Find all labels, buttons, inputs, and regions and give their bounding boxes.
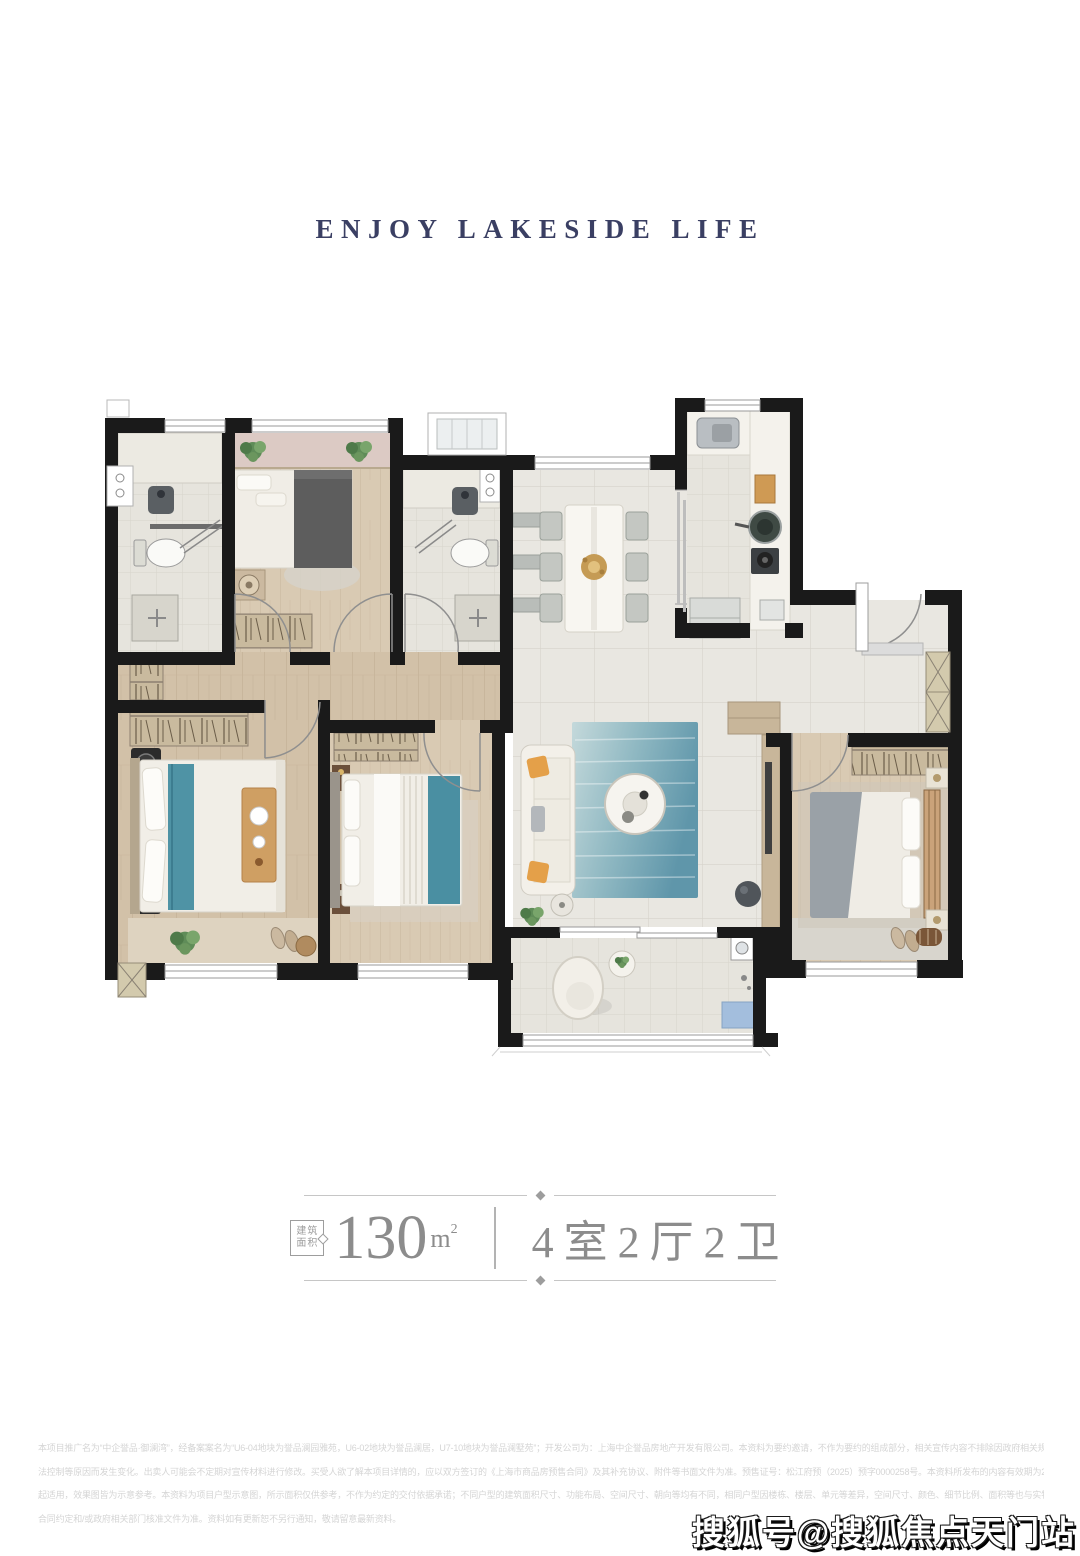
- diamond-icon: [535, 1276, 545, 1286]
- divider: [494, 1207, 496, 1269]
- entry-sill: [862, 643, 923, 655]
- spec-row: 建筑 面积 130 m2 4室2厅2卫: [304, 1200, 776, 1276]
- watermark: 搜狐号@搜狐焦点天门站: [692, 1506, 1076, 1554]
- deco-line-top: [304, 1192, 776, 1199]
- diamond-icon: [535, 1191, 545, 1201]
- floor-plan: [0, 0, 1080, 1556]
- badge-line2: 面积: [296, 1238, 318, 1250]
- spec-block: 建筑 面积 130 m2 4室2厅2卫: [304, 1192, 776, 1284]
- badge-line1: 建筑: [296, 1226, 318, 1238]
- disclaimer-line: 本项目推广名为“中企誉品·御澜湾”，经备案案名为“U6-04地块为誉品澜园雅苑，…: [38, 1437, 1044, 1461]
- pipe-shaft: [107, 466, 133, 506]
- badge-diamond-icon: [318, 1233, 329, 1244]
- deco-line-bottom: [304, 1277, 776, 1284]
- layout-text: 4室2厅2卫: [532, 1206, 790, 1270]
- entry-floor: [790, 600, 948, 733]
- disclaimer-line: 法控制等原因而发生变化。出卖人可能会不定期对宣传材料进行修改。买受人欲了解本项目…: [38, 1461, 1044, 1485]
- area-unit: m2: [430, 1222, 457, 1254]
- area-value: 130: [334, 1207, 427, 1269]
- disclaimer-line: 起适用，效果图皆为示意参考。本资料为项目户型示意图，所示面积仅供参考，不作为约定…: [38, 1484, 1044, 1508]
- area-badge: 建筑 面积: [290, 1220, 324, 1256]
- poster-page: ENJOY LAKESIDE LIFE: [0, 0, 1080, 1556]
- entry-door-leaf: [856, 583, 868, 651]
- balcony-floor: [511, 938, 753, 1033]
